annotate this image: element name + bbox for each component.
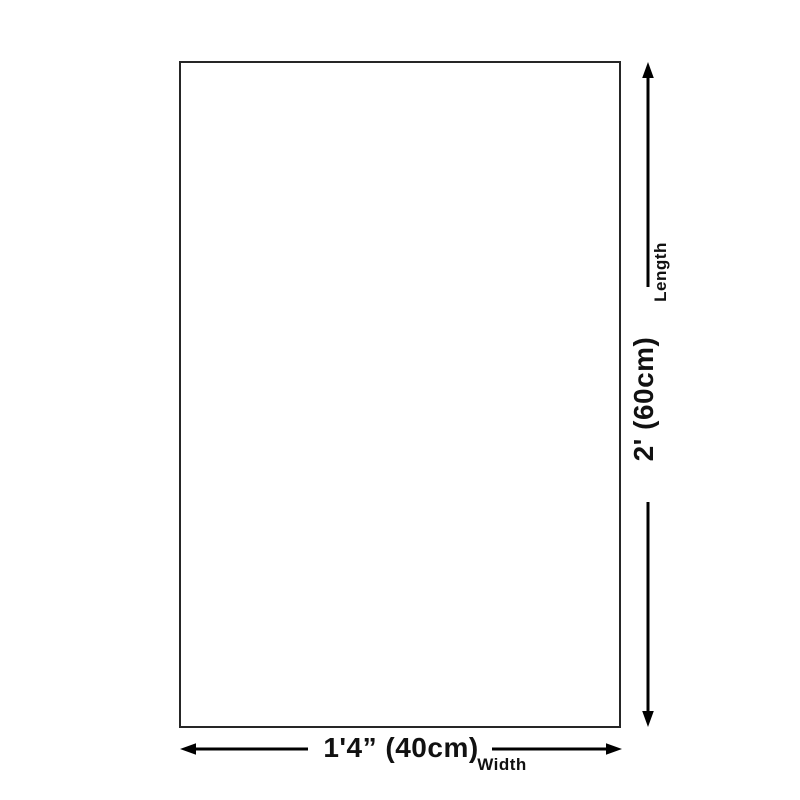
arrow-down-icon — [642, 711, 654, 727]
width-value-label: 1'4” (40cm) — [323, 732, 478, 764]
diagram-canvas — [0, 0, 800, 800]
width-axis-label: Width — [477, 755, 527, 775]
length-arrow-bottom-segment — [642, 502, 654, 727]
dimension-diagram: Length 2' (60cm) 1'4” (40cm) Width — [0, 0, 800, 800]
width-arrow-right-segment — [492, 743, 622, 755]
length-value-label: 2' (60cm) — [628, 337, 660, 462]
width-arrow-left-segment — [180, 743, 308, 755]
product-rectangle — [180, 62, 620, 727]
length-axis-label: Length — [651, 242, 671, 302]
arrow-left-icon — [180, 743, 196, 755]
arrow-up-icon — [642, 62, 654, 78]
arrow-right-icon — [606, 743, 622, 755]
